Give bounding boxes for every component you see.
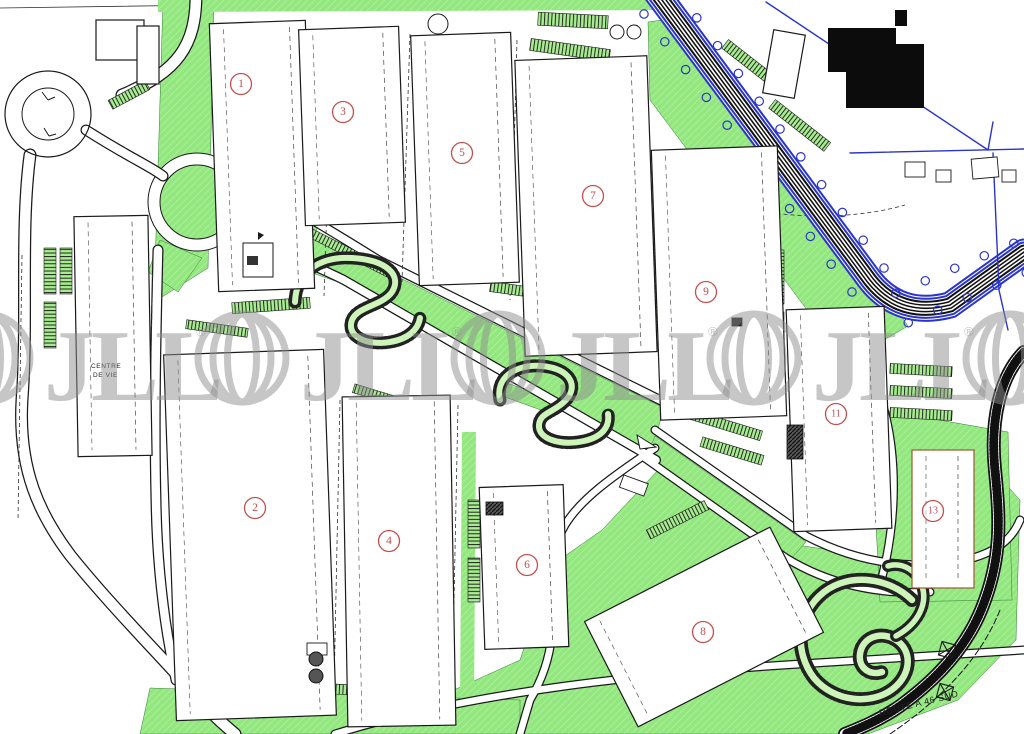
plot-number: 2: [252, 502, 258, 514]
plot-number: 13: [928, 506, 938, 517]
plot-badge-5: 5: [452, 143, 473, 164]
plot-number: 6: [524, 559, 530, 571]
plot-number: 5: [459, 147, 465, 159]
jll-watermark-text: JLL: [44, 310, 219, 423]
plot-badge-11: 11: [826, 404, 847, 425]
plot-number: 8: [700, 626, 706, 638]
plot-number: 1: [238, 78, 244, 90]
plot-number: 11: [831, 409, 841, 420]
site-plan-svg: CENTRE DE VIE ROUTE A 46 SUD JLL®JLL®JLL…: [0, 0, 1024, 734]
plot-badge-7: 7: [583, 186, 604, 207]
plot-badge-9: 9: [696, 282, 717, 303]
plot-number: 9: [703, 286, 709, 298]
building-plot-annex-b: [137, 26, 159, 84]
plot-badge-2: 2: [245, 498, 266, 519]
plot-badge-4: 4: [379, 531, 400, 552]
plot-badge-13: 13: [923, 501, 944, 522]
jll-watermark-text: JLL: [300, 310, 475, 423]
plot-number: 3: [340, 106, 346, 118]
site-plan: CENTRE DE VIE ROUTE A 46 SUD JLL®JLL®JLL…: [0, 0, 1024, 734]
plot-badge-1: 1: [231, 74, 252, 95]
building-plot-13: [912, 450, 974, 588]
black-annex: [895, 10, 907, 26]
plot-number: 4: [386, 535, 392, 547]
plot-number: 7: [590, 190, 596, 202]
building-plot-4: [342, 395, 456, 727]
jll-watermark-text: JLL: [556, 310, 731, 423]
plot-badge-6: 6: [517, 555, 538, 576]
building-plot-3: [299, 26, 406, 225]
plot-badge-3: 3: [333, 102, 354, 123]
plot-badge-8: 8: [693, 622, 714, 643]
